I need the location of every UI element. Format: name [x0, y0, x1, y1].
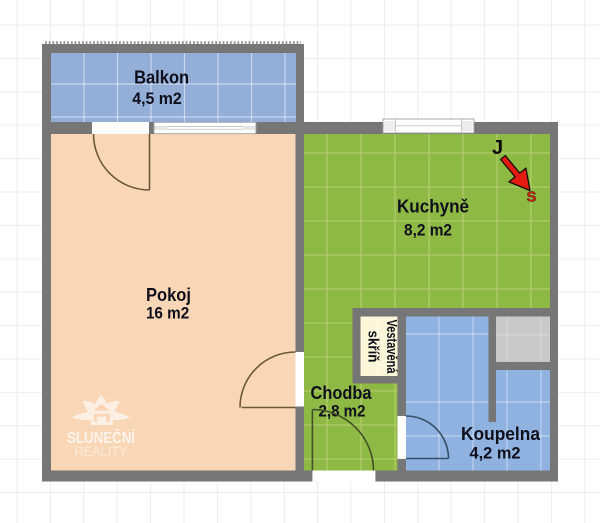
svg-text:8,2 m2: 8,2 m2 [404, 221, 452, 240]
svg-text:Chodba: Chodba [311, 382, 373, 403]
svg-text:Pokoj: Pokoj [146, 284, 191, 305]
svg-text:16 m2: 16 m2 [146, 304, 189, 323]
svg-text:Koupelna: Koupelna [461, 423, 541, 444]
svg-text:Vestavěná: Vestavěná [383, 320, 399, 375]
svg-text:REALITY: REALITY [74, 443, 128, 459]
svg-text:J: J [492, 137, 503, 159]
svg-text:4,5 m2: 4,5 m2 [132, 89, 182, 108]
svg-text:Kuchyně: Kuchyně [397, 196, 469, 217]
svg-text:S: S [527, 190, 537, 206]
svg-text:Balkon: Balkon [134, 67, 189, 88]
svg-text:skříň: skříň [365, 331, 381, 363]
svg-text:4,2 m2: 4,2 m2 [470, 444, 521, 463]
